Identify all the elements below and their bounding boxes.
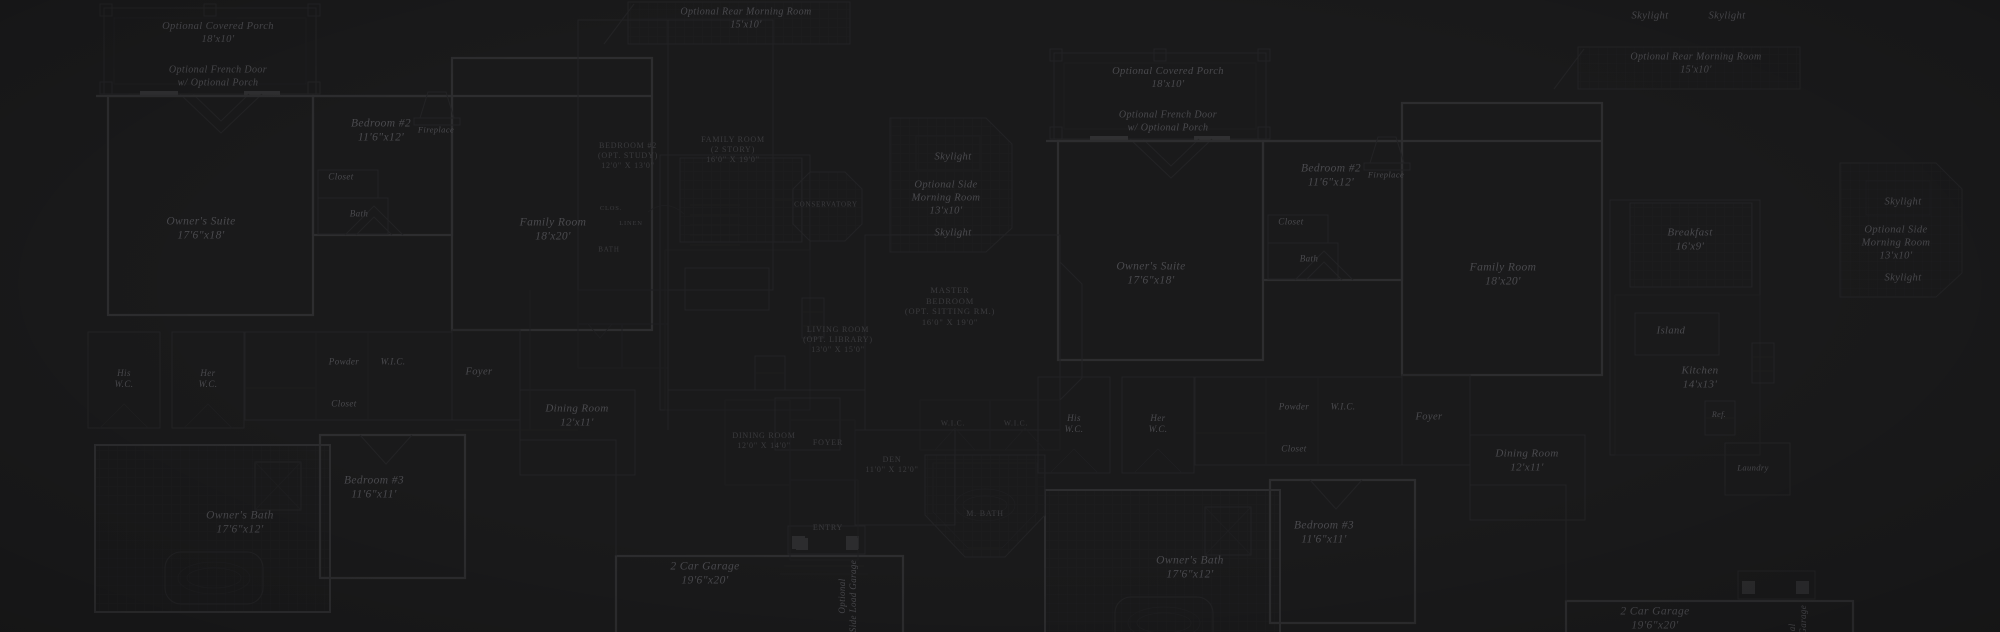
owners-suite-label: Owner's Suite17'6"x18'	[1116, 260, 1185, 289]
optional-covered-porch-label: Optional Covered Porch18'x10'	[162, 20, 274, 46]
her-wc-label: HerW.C.	[199, 368, 218, 391]
her-wc-label: HerW.C.	[1149, 413, 1168, 436]
rear-morning-room-label: Optional Rear Morning Room15'x10'	[1630, 52, 1761, 77]
wic-label: W.I.C.	[381, 356, 406, 367]
side-morning-room-label: Optional SideMorning Room13'x10'	[912, 178, 981, 217]
side-load-garage-label: OptionalSide Load Garage	[1787, 605, 1810, 632]
island-label: Island	[1657, 324, 1686, 337]
living-room-label: LIVING ROOM(OPT. LIBRARY)13'0" X 15'0"	[803, 325, 873, 355]
bedroom-3-label: Bedroom #311'6"x11'	[344, 474, 404, 503]
his-wc-label: HisW.C.	[1065, 413, 1084, 436]
foyer-label: Foyer	[1415, 410, 1442, 423]
powder-label: Powder	[1279, 401, 1309, 412]
den-label: DEN11'0" X 12'0"	[865, 455, 918, 475]
bedroom-2-label: Bedroom #211'6"x12'	[351, 117, 411, 146]
kitchen-label: Kitchen14'x13'	[1681, 364, 1718, 392]
garage-label: 2 Car Garage19'6"x20'	[670, 560, 739, 589]
closet-hall-label: Closet	[1281, 443, 1306, 454]
closet-bedroom2-label: Closet	[328, 171, 353, 182]
powder-label: Powder	[329, 356, 359, 367]
entry-label: ENTRY	[813, 523, 843, 533]
dining-room-label: Dining Room12'x11'	[1495, 447, 1558, 475]
fireplace-label: Fireplace	[418, 125, 454, 136]
side-morning-room-label: Optional SideMorning Room13'x10'	[1862, 223, 1931, 262]
breakfast-label: Breakfast16'x9'	[1667, 226, 1712, 254]
owners-suite-label: Owner's Suite17'6"x18'	[166, 215, 235, 244]
fireplace-label: Fireplace	[1368, 170, 1404, 181]
family-room-label: Family Room18'x20'	[1470, 261, 1537, 290]
wic-label: W.I.C.	[1331, 401, 1356, 412]
family-room-label: Family Room18'x20'	[520, 216, 587, 245]
bath-label: Bath	[1300, 253, 1319, 264]
family-room-2story-label: FAMILY ROOM(2 STORY)16'0" X 19'0"	[701, 135, 765, 165]
foyer-label: Foyer	[465, 365, 492, 378]
bath-label: Bath	[350, 208, 369, 219]
refrigerator-label: Ref.	[1712, 410, 1726, 420]
bath-small-label: BATH	[598, 246, 619, 255]
closet-bedroom2-label: Closet	[1278, 216, 1303, 227]
owners-bath-label: Owner's Bath17'6"x12'	[206, 509, 274, 538]
owners-bath-label: Owner's Bath17'6"x12'	[1156, 554, 1224, 583]
skylight-lower-label: Skylight	[1884, 271, 1921, 284]
skylight-upper-label: Skylight	[934, 150, 971, 163]
master-bath-label: M. BATH	[966, 509, 1004, 519]
skylight-rear-a-label: Skylight	[1631, 9, 1668, 22]
master-bedroom-label: MASTERBEDROOM(OPT. SITTING RM.)16'0" X 1…	[905, 285, 995, 328]
optional-french-door-label: Optional French Doorw/ Optional Porch	[169, 65, 267, 90]
wic-right-label: W.I.C.	[1004, 418, 1028, 427]
dining-room-formal-label: DINING ROOM12'0" X 14'0"	[732, 431, 795, 451]
side-load-garage-label: OptionalSide Load Garage	[837, 560, 860, 632]
conservatory-label: CONSERVATORY	[794, 201, 858, 210]
closet-hall-label: Closet	[331, 398, 356, 409]
bedroom-2-label: Bedroom #211'6"x12'	[1301, 162, 1361, 191]
optional-covered-porch-label: Optional Covered Porch18'x10'	[1112, 65, 1224, 91]
optional-french-door-label: Optional French Doorw/ Optional Porch	[1119, 110, 1217, 135]
laundry-label: Laundry	[1737, 463, 1769, 474]
garage-label: 2 Car Garage19'6"x20'	[1620, 605, 1689, 632]
dining-room-label: Dining Room12'x11'	[545, 402, 608, 430]
wic-left-label: W.I.C.	[941, 418, 965, 427]
bedroom-3-label: Bedroom #311'6"x11'	[1294, 519, 1354, 548]
his-wc-label: HisW.C.	[115, 368, 134, 391]
floorplan-background: Optional Covered Porch18'x10'Optional Fr…	[0, 0, 2000, 632]
skylight-lower-label: Skylight	[934, 226, 971, 239]
skylight-rear-b-label: Skylight	[1708, 9, 1745, 22]
rear-morning-room-label: Optional Rear Morning Room15'x10'	[680, 7, 811, 32]
linen-label: LINEN	[619, 220, 643, 228]
skylight-upper-label: Skylight	[1884, 195, 1921, 208]
foyer-2story-label: FOYER	[813, 438, 843, 448]
bedroom-2-option-label: BEDROOM #2(OPT. STUDY)12'0" X 13'0"	[598, 141, 658, 171]
closet-small-label: CLOS.	[600, 205, 622, 213]
room-labels-layer: Optional Covered Porch18'x10'Optional Fr…	[0, 0, 2000, 632]
